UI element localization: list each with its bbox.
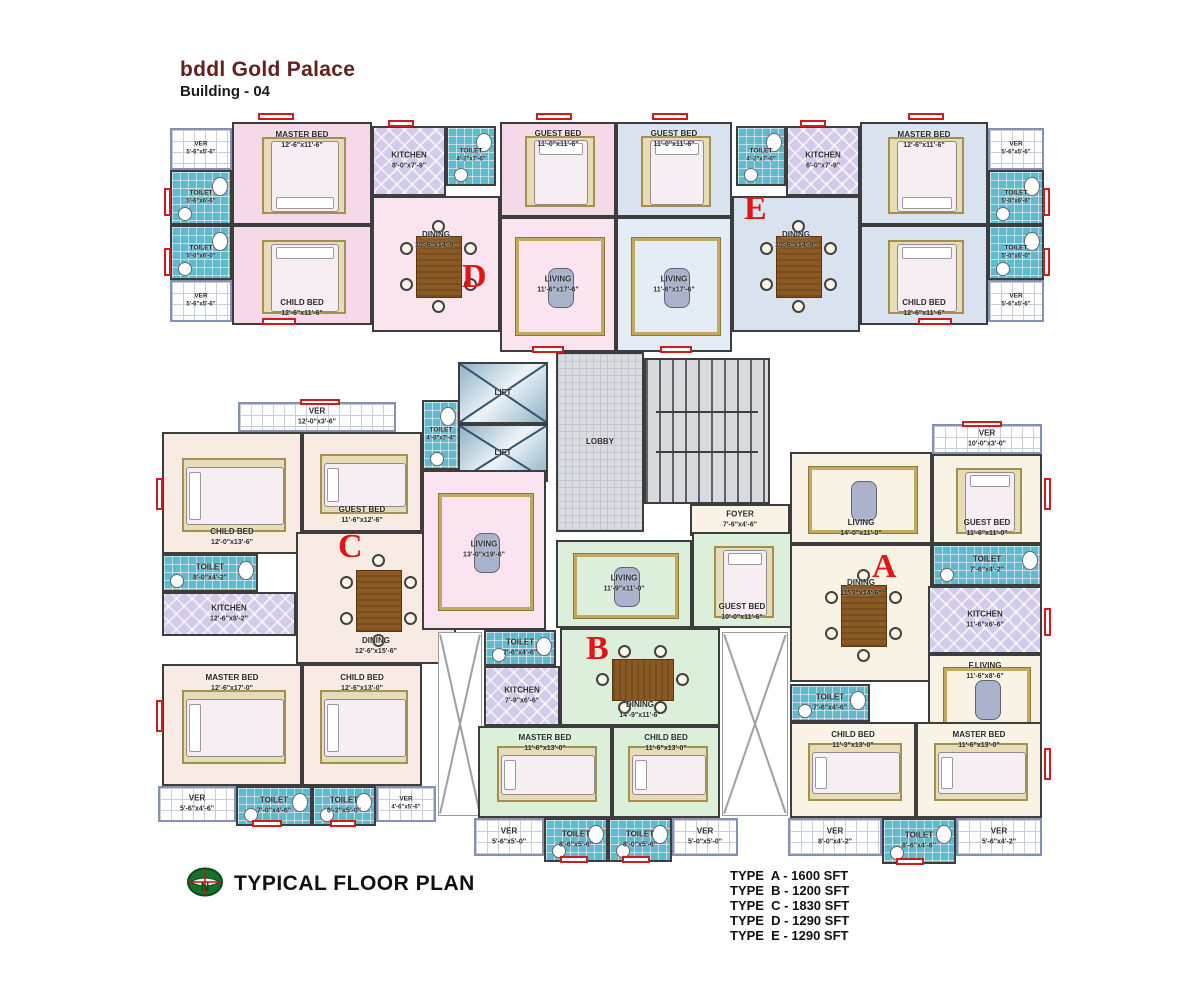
room-dining-a: DINING11'-3"x14'-6" (790, 544, 932, 682)
room-ver-c-top: VER12'-0"x3'-6" (238, 402, 396, 432)
room-kitchen-b: KITCHEN7'-9"x6'-6" (484, 666, 560, 726)
pillow (327, 468, 339, 502)
room-child-bed-d: CHILD BED12'-6"x11'-6" (232, 225, 372, 325)
window-marker (1044, 608, 1051, 636)
room-label: TOILET4'-2"x7'-6" (448, 148, 494, 165)
room-label: VER8'-0"x4'-2" (790, 827, 880, 848)
room-label: LOBBY (558, 437, 642, 447)
pillow (189, 472, 201, 519)
room-label: LIFT (460, 388, 546, 398)
chair (596, 673, 609, 686)
compass-logo-icon: N (186, 866, 224, 904)
unit-letter-a: A (872, 548, 897, 586)
room-toilet-c-1: TOILET8'-0"x4'-2" (162, 554, 258, 592)
window-marker (164, 188, 171, 216)
room-label: VER5'-6"x5'-6" (990, 293, 1042, 310)
room-label: LIVING14'-0"x11'-0" (792, 518, 930, 539)
room-toilet-b: TOILET7'-6"x4'-6" (484, 630, 556, 666)
room-child-bed-c2: CHILD BED12'-6"x13'-0" (302, 664, 422, 786)
basin-fixture (178, 262, 192, 276)
basin-fixture (996, 207, 1010, 221)
room-label: GUEST BED10'-0"x11'-6" (694, 602, 790, 623)
room-toilet-d-2: TOILET5'-0"x6'-0" (170, 225, 232, 280)
basin-fixture (744, 168, 758, 182)
room-label: CHILD BED12'-6"x11'-6" (862, 298, 986, 319)
chair (618, 645, 631, 658)
window-marker (156, 700, 163, 732)
room-guest-bed-b: GUEST BED10'-0"x11'-6" (692, 532, 792, 628)
window-marker (156, 478, 163, 510)
window-marker (536, 113, 572, 120)
room-master-bed-b: MASTER BED11'-6"x13'-0" (478, 726, 612, 818)
room-label: VER12'-0"x3'-6" (240, 407, 394, 428)
room-label: KITCHEN6'-0"x7'-9" (788, 151, 858, 172)
room-guest-bed-c: GUEST BED11'-6"x12'-6" (302, 432, 422, 532)
room-label: TOILET8'-6"x5'-6" (546, 830, 606, 851)
room-toilet-e-1: TOILET5'-0"x6'-6" (988, 170, 1044, 225)
pillow (276, 197, 334, 209)
pillow (635, 760, 647, 789)
window-marker (896, 858, 924, 865)
room-duct-l (438, 632, 482, 816)
coffee-table (851, 481, 877, 521)
room-toilet-e-3: TOILET4'-2"x7'-6" (736, 126, 786, 186)
room-kitchen-d: KITCHEN8'-0"x7'-9" (372, 126, 446, 196)
window-marker (622, 856, 650, 863)
room-label: VER5'-6"x5'-6" (990, 141, 1042, 158)
room-kitchen-a: KITCHEN11'-6"x6'-6" (928, 586, 1042, 654)
window-marker (1043, 188, 1050, 216)
room-label: MASTER BED11'-6"x13'-0" (918, 730, 1040, 751)
room-ver-b-1: VER5'-6"x5'-0" (474, 818, 544, 856)
chair (654, 645, 667, 658)
window-marker (330, 820, 356, 827)
chair (340, 612, 353, 625)
room-label: TOILET5'-0"x6'-6" (990, 189, 1042, 206)
room-toilet-core: TOILET4'-0"x7'-4" (422, 400, 460, 470)
room-label: LIFT (460, 448, 546, 458)
room-label: VER5'-6"x4'-6" (160, 794, 234, 815)
room-lobby: LOBBY (556, 352, 644, 532)
room-master-bed-c: MASTER BED12'-6"x17'-0" (162, 664, 302, 786)
room-label: CHILD BED11'-3"x13'-0" (792, 730, 914, 751)
chair (760, 278, 773, 291)
pillow (728, 553, 762, 565)
room-label: DINING10'-6"x14'-9" (734, 230, 858, 251)
room-label: VER5'-6"x4'-2" (958, 827, 1040, 848)
chair (372, 554, 385, 567)
pillow (327, 704, 339, 751)
window-marker (800, 120, 826, 127)
room-label: TOILET8'-0"x4'-2" (164, 563, 256, 584)
room-label: KITCHEN7'-9"x6'-6" (486, 686, 558, 707)
room-toilet-a-1: TOILET7'-6"x4'-2" (932, 544, 1042, 586)
room-label: GUEST BED11'-0"x11'-6" (618, 129, 730, 150)
room-label: KITCHEN11'-6"x6'-6" (930, 610, 1040, 631)
room-label: KITCHEN8'-0"x7'-9" (374, 151, 444, 172)
room-guest-bed-e: GUEST BED11'-0"x11'-6" (616, 122, 732, 217)
room-label: MASTER BED12'-6"x17'-0" (164, 673, 300, 694)
pillow (276, 247, 334, 259)
room-label: F.LIVING11'-6"x8'-6" (930, 661, 1040, 682)
window-marker (388, 120, 414, 127)
room-label: TOILET7'-0"x4'-6" (238, 796, 310, 817)
room-label: TOILET5'-6"x6'-6" (172, 189, 230, 206)
chair (404, 612, 417, 625)
room-label: LIVING11'-6"x17'-6" (618, 274, 730, 295)
room-label: TOILET4'-0"x7'-4" (424, 427, 458, 444)
room-label: TOILET4'-2"x7'-6" (738, 148, 784, 165)
window-marker (660, 346, 692, 353)
basin-fixture (178, 207, 192, 221)
room-label: TOILET7'-6"x4'-6" (792, 693, 868, 714)
room-label: MASTER BED12'-6"x11'-6" (234, 130, 370, 151)
room-label: CHILD BED11'-6"x13'-0" (614, 733, 718, 754)
dining-table (612, 659, 674, 701)
room-ver-a-top: VER10'-0"x3'-0" (932, 424, 1042, 454)
room-child-bed-c1: CHILD BED12'-0"x13'-6" (162, 432, 302, 554)
room-living-d: LIVING11'-6"x17'-6" (500, 217, 616, 352)
chair (857, 649, 870, 662)
plan-canvas: VER5'-6"x5'-6"TOILET5'-6"x6'-6"TOILET5'-… (0, 0, 1196, 981)
room-label: GUEST BED11'-6"x11'-0" (934, 518, 1040, 539)
room-label: TOILET8'-6"x4'-6" (884, 831, 954, 852)
room-child-bed-e: CHILD BED12'-6"x11'-6" (860, 225, 988, 325)
chair (432, 300, 445, 313)
room-stairs (644, 358, 770, 504)
floor-plan-page: bddl Gold Palace Building - 04 VER5'-6"x… (0, 0, 1196, 981)
room-living-c: LIVING13'-0"x19'-6" (422, 470, 546, 630)
unit-letter-e: E (744, 190, 767, 228)
basin-fixture (454, 168, 468, 182)
basin-fixture (430, 452, 444, 466)
coffee-table (975, 680, 1001, 720)
room-label: CHILD BED12'-0"x13'-6" (164, 527, 300, 548)
room-label: GUEST BED11'-6"x12'-6" (304, 505, 420, 526)
stair-rail (656, 451, 758, 453)
pillow (189, 704, 201, 751)
window-marker (1043, 248, 1050, 276)
room-toilet-e-2: TOILET5'-0"x6'-0" (988, 225, 1044, 280)
room-master-bed-e: MASTER BED12'-6"x11'-6" (860, 122, 988, 225)
room-label: VER10'-0"x3'-0" (934, 429, 1040, 450)
room-kitchen-c: KITCHEN12'-6"x8'-2" (162, 592, 296, 636)
unit-letter-b: B (586, 630, 609, 668)
window-marker (1044, 478, 1051, 510)
room-ver-a-b2: VER5'-6"x4'-2" (956, 818, 1042, 856)
basin-fixture (996, 262, 1010, 276)
room-label: VER5'-6"x5'-6" (172, 293, 230, 310)
room-label: TOILET5'-0"x6'-0" (990, 244, 1042, 261)
room-ver-b-2: VER5'-0"x5'-0" (672, 818, 738, 856)
room-toilet-d-1: TOILET5'-6"x6'-6" (170, 170, 232, 225)
room-ver-a-b1: VER8'-0"x4'-2" (788, 818, 882, 856)
window-marker (164, 248, 171, 276)
chair (676, 673, 689, 686)
plan-title: TYPICAL FLOOR PLAN (234, 872, 475, 896)
stair-rail (656, 411, 758, 413)
room-living-e: LIVING11'-6"x17'-6" (616, 217, 732, 352)
chair (792, 300, 805, 313)
room-label: LIVING11'-6"x17'-6" (502, 274, 614, 295)
chair (340, 576, 353, 589)
room-label: VER4'-6"x5'-6" (378, 796, 434, 813)
room-label: CHILD BED12'-6"x11'-6" (234, 298, 370, 319)
room-ver-c-b1: VER5'-6"x4'-6" (158, 786, 236, 822)
room-label: GUEST BED11'-0"x11'-6" (502, 129, 614, 150)
room-label: DINING14'-9"x11'-6" (562, 700, 718, 721)
window-marker (252, 820, 282, 827)
room-label: DINING12'-6"x15'-6" (298, 636, 454, 657)
window-marker (1044, 748, 1051, 780)
room-child-bed-b: CHILD BED11'-6"x13'-0" (612, 726, 720, 818)
chair (825, 627, 838, 640)
window-marker (962, 421, 1002, 427)
room-label: MASTER BED12'-6"x11'-6" (862, 130, 986, 151)
room-ver-d-bot: VER5'-6"x5'-6" (170, 280, 232, 322)
room-toilet-d-3: TOILET4'-2"x7'-6" (446, 126, 496, 186)
chair (400, 278, 413, 291)
room-label: VER5'-6"x5'-0" (476, 827, 542, 848)
room-label: TOILET6'-2"x5'-0" (314, 796, 374, 817)
room-duct-r (722, 632, 788, 816)
room-label: LIVING13'-0"x19'-6" (424, 540, 544, 561)
room-label: LIVING11'-9"x11'-0" (558, 574, 690, 595)
room-label: VER5'-6"x5'-6" (172, 141, 230, 158)
room-label: KITCHEN12'-6"x8'-2" (164, 604, 294, 625)
unit-letter-c: C (338, 528, 363, 566)
room-living-a: LIVING14'-0"x11'-0" (790, 452, 932, 544)
pillow (902, 197, 953, 209)
room-living-b: LIVING11'-9"x11'-0" (556, 540, 692, 628)
room-master-bed-a: MASTER BED11'-6"x13'-0" (916, 722, 1042, 818)
room-label: TOILET7'-6"x4'-2" (934, 555, 1040, 576)
room-guest-bed-a: GUEST BED11'-6"x11'-0" (932, 454, 1042, 544)
room-label: TOILET8'-0"x5'-6" (610, 830, 670, 851)
room-ver-d-top: VER5'-6"x5'-6" (170, 128, 232, 170)
room-dining-b: DINING14'-9"x11'-6" (560, 628, 720, 726)
room-child-bed-a: CHILD BED11'-3"x13'-0" (790, 722, 916, 818)
room-label: TOILET7'-6"x4'-6" (486, 638, 554, 659)
window-marker (258, 113, 294, 120)
wc-fixture (440, 407, 456, 426)
window-marker (300, 399, 340, 405)
room-label: VER5'-0"x5'-0" (674, 827, 736, 848)
pillow (902, 247, 953, 259)
room-label: CHILD BED12'-6"x13'-0" (304, 673, 420, 694)
window-marker (908, 113, 944, 120)
window-marker (262, 318, 296, 325)
room-label: TOILET5'-0"x6'-0" (172, 244, 230, 261)
room-toilet-a-2: TOILET7'-6"x4'-6" (790, 684, 870, 722)
room-label: FOYER7'-6"x4'-6" (692, 510, 788, 531)
room-ver-e-top: VER5'-6"x5'-6" (988, 128, 1044, 170)
window-marker (918, 318, 952, 325)
pillow (941, 757, 953, 789)
dining-table (356, 570, 402, 632)
window-marker (560, 856, 588, 863)
pillow (815, 757, 827, 789)
window-marker (652, 113, 688, 120)
room-label: DINING11'-3"x14'-6" (792, 578, 930, 599)
chair (824, 278, 837, 291)
pillow (970, 475, 1010, 487)
room-lift-1: LIFT (458, 362, 548, 424)
pillow (504, 760, 516, 789)
window-marker (532, 346, 564, 353)
room-guest-bed-d: GUEST BED11'-0"x11'-6" (500, 122, 616, 217)
room-master-bed-d: MASTER BED12'-6"x11'-6" (232, 122, 372, 225)
room-label: DINING10'-6"x14'-9" (374, 230, 498, 251)
room-ver-e-bot: VER5'-6"x5'-6" (988, 280, 1044, 322)
chair (404, 576, 417, 589)
chair (889, 627, 902, 640)
svg-text:N: N (201, 880, 210, 894)
room-ver-c-b2: VER4'-6"x5'-6" (376, 786, 436, 822)
unit-type-legend: TYPE A - 1600 SFT TYPE B - 1200 SFT TYPE… (730, 868, 849, 943)
room-label: MASTER BED11'-6"x13'-0" (480, 733, 610, 754)
unit-letter-d: D (462, 258, 487, 296)
room-kitchen-e: KITCHEN6'-0"x7'-9" (786, 126, 860, 196)
